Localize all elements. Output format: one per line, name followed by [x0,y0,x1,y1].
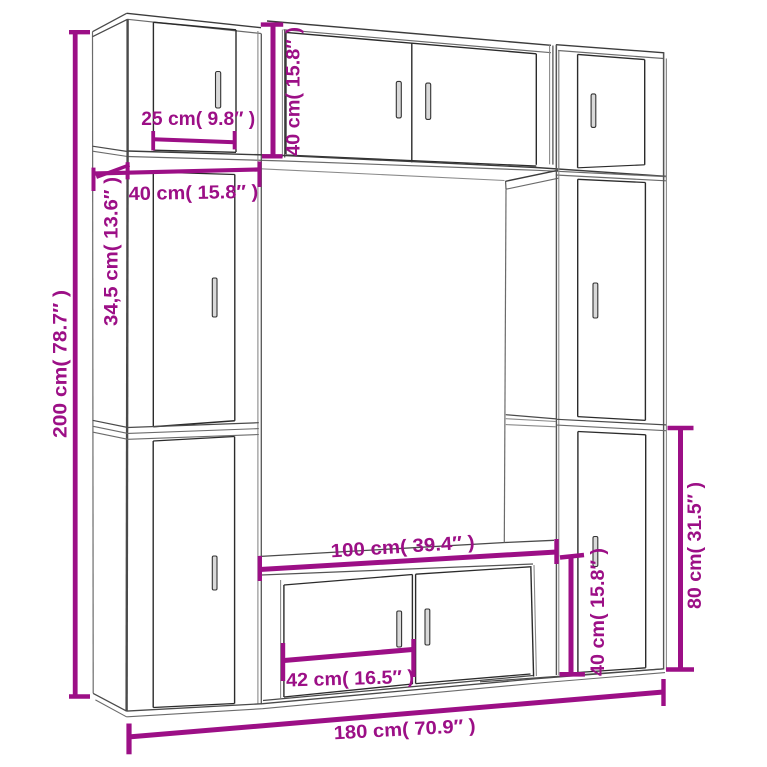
svg-text:200 cm( 78.7″ ): 200 cm( 78.7″ ) [51,290,72,438]
svg-text:25 cm( 9.8″ ): 25 cm( 9.8″ ) [141,109,255,130]
svg-text:40 cm( 15.8″ ): 40 cm( 15.8″ ) [284,27,305,156]
svg-text:80 cm( 31.5″ ): 80 cm( 31.5″ ) [685,482,706,609]
svg-text:34,5 cm( 13.6″ ): 34,5 cm( 13.6″ ) [102,177,123,326]
svg-text:42 cm( 16.5″ ): 42 cm( 16.5″ ) [286,667,415,692]
svg-text:40 cm( 15.8″ ): 40 cm( 15.8″ ) [588,548,609,676]
svg-text:40 cm( 15.8″ ): 40 cm( 15.8″ ) [128,182,258,205]
